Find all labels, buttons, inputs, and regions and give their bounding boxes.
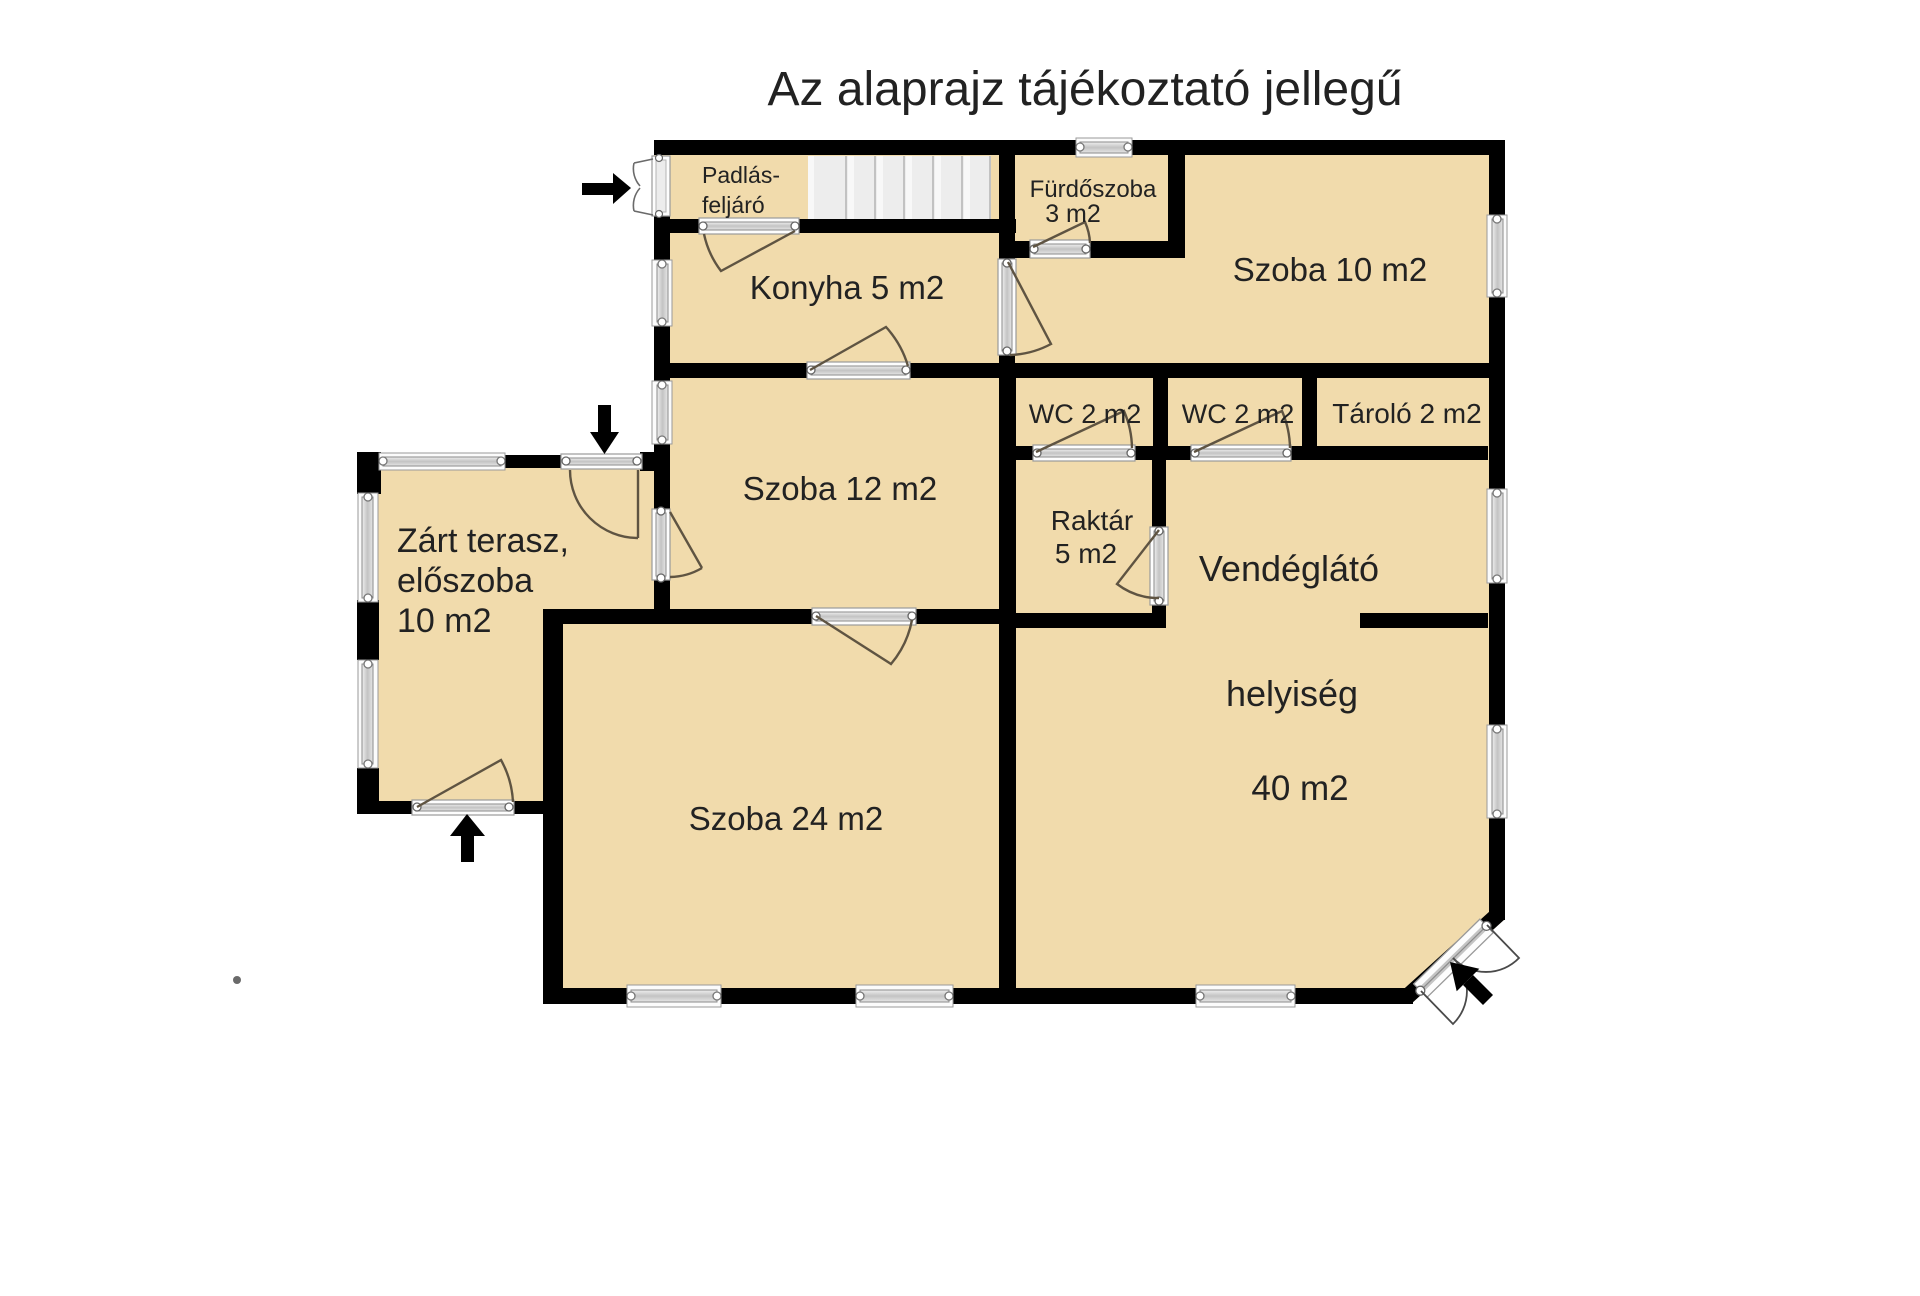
svg-text:Szoba 10 m2: Szoba 10 m2 [1233, 251, 1427, 288]
svg-text:Szoba 12 m2: Szoba 12 m2 [743, 470, 937, 507]
svg-text:40 m2: 40 m2 [1251, 769, 1348, 808]
svg-text:WC 2 m2: WC 2 m2 [1029, 399, 1142, 429]
svg-text:10 m2: 10 m2 [397, 602, 492, 640]
svg-text:3 m2: 3 m2 [1045, 200, 1101, 228]
svg-text:előszoba: előszoba [397, 562, 533, 600]
svg-text:Szoba 24 m2: Szoba 24 m2 [689, 800, 883, 837]
svg-text:WC 2 m2: WC 2 m2 [1182, 399, 1295, 429]
svg-text:Konyha 5 m2: Konyha 5 m2 [750, 269, 944, 306]
svg-text:Tároló 2 m2: Tároló 2 m2 [1332, 398, 1481, 429]
svg-text:Fürdőszoba: Fürdőszoba [1030, 176, 1157, 203]
svg-text:Vendéglátó: Vendéglátó [1199, 548, 1379, 589]
svg-text:Padlás-: Padlás- [702, 162, 780, 188]
svg-text:helyiség: helyiség [1226, 673, 1358, 714]
svg-text:Az alaprajz tájékoztató jelleg: Az alaprajz tájékoztató jellegű [767, 63, 1402, 116]
svg-text:feljáró: feljáró [702, 192, 765, 218]
svg-text:5 m2: 5 m2 [1055, 538, 1117, 569]
svg-text:Zárt terasz,: Zárt terasz, [397, 522, 569, 560]
svg-text:Raktár: Raktár [1051, 505, 1133, 536]
